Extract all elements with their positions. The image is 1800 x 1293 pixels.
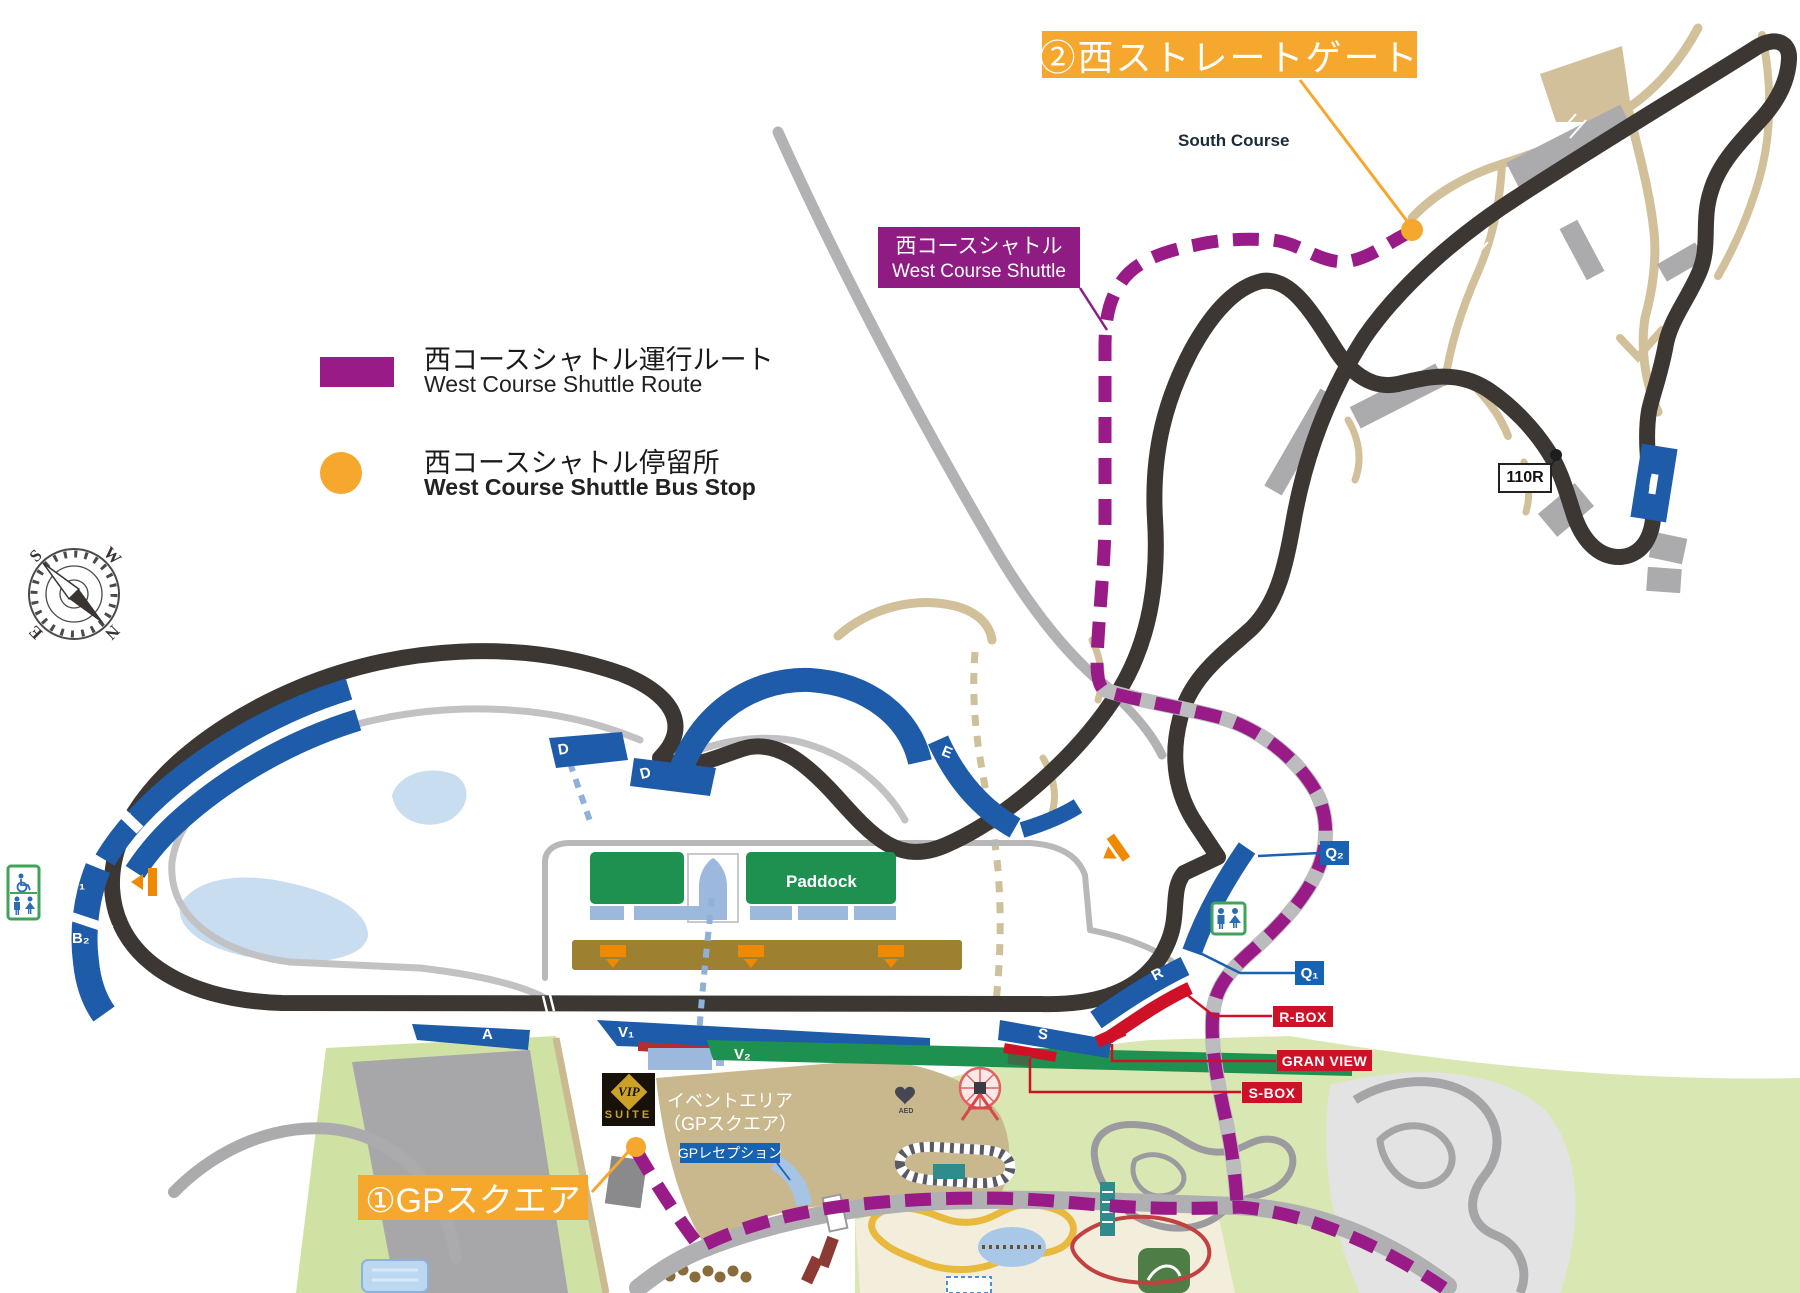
stand-label-q2-box: Q₂ bbox=[1320, 841, 1349, 865]
gran-view-label: GRAN VIEW bbox=[1277, 1050, 1372, 1071]
vip-suite-building: VIP SUITE bbox=[602, 1073, 655, 1126]
legend-stop-en: West Course Shuttle Bus Stop bbox=[424, 474, 756, 501]
vip-diamond-icon: VIP bbox=[610, 1073, 647, 1110]
shuttle-banner-jp: 西コースシャトル bbox=[878, 233, 1080, 260]
main-circuit-track bbox=[112, 41, 1789, 1004]
circuit-shuttle-map: W N E S ②西ストレートゲート South Course 西コースシャトル… bbox=[0, 0, 1800, 1293]
s-box-label: S-BOX bbox=[1242, 1082, 1302, 1103]
stand-label-q2: Q₂ bbox=[1325, 845, 1343, 862]
bus-stop-west-gate bbox=[1401, 219, 1423, 241]
facility-box-west bbox=[8, 866, 39, 919]
stand-label-a: A bbox=[482, 1026, 493, 1043]
facility-box-q bbox=[1212, 903, 1245, 934]
s-box-text: S-BOX bbox=[1249, 1085, 1296, 1101]
west-course-shuttle-banner: 西コースシャトル West Course Shuttle bbox=[878, 227, 1080, 288]
gp-square-label: ①GPスクエア bbox=[365, 1173, 581, 1222]
shuttle-banner-en: West Course Shuttle bbox=[878, 260, 1080, 285]
stand-label-q1-box: Q₁ bbox=[1295, 961, 1324, 985]
corner-110r-text: 110R bbox=[1506, 469, 1543, 487]
gran-view-text: GRAN VIEW bbox=[1282, 1053, 1367, 1069]
legend-route-swatch bbox=[320, 357, 394, 387]
corner-110r-label: 110R bbox=[1498, 463, 1552, 493]
stand-label-b1: B₁ bbox=[68, 876, 85, 893]
map-artwork: W N E S bbox=[0, 0, 1800, 1293]
gp-square-banner: ①GPスクエア bbox=[358, 1175, 588, 1220]
west-straight-gate-banner: ②西ストレートゲート bbox=[1042, 31, 1417, 78]
gp-reception-label: GPレセプション bbox=[680, 1143, 780, 1163]
grandstands bbox=[70, 444, 1678, 1076]
vip-text: VIP bbox=[618, 1083, 640, 1099]
compass-icon: W N E S bbox=[25, 543, 125, 644]
r-box-text: R-BOX bbox=[1279, 1009, 1327, 1025]
paddock-label: Paddock bbox=[786, 872, 857, 892]
stand-label-b2: B₂ bbox=[72, 930, 90, 947]
event-area-line1: イベントエリア bbox=[655, 1090, 805, 1113]
gp-reception-text: GPレセプション bbox=[678, 1143, 782, 1163]
west-straight-gate-label: ②西ストレートゲート bbox=[1040, 29, 1420, 81]
legend-stop-dot bbox=[320, 452, 362, 494]
south-course-label: South Course bbox=[1178, 131, 1289, 151]
stand-label-v2: V₂ bbox=[734, 1046, 751, 1063]
corner-110r-dot bbox=[1550, 449, 1562, 461]
r-box-label: R-BOX bbox=[1273, 1006, 1333, 1027]
paddock-complex bbox=[572, 852, 962, 970]
legend-route-en: West Course Shuttle Route bbox=[424, 371, 702, 398]
event-area-line2: （GPスクエア） bbox=[655, 1113, 805, 1136]
aed-label: AED bbox=[896, 1108, 916, 1115]
event-area-label: イベントエリア （GPスクエア） bbox=[655, 1090, 805, 1135]
stand-label-q1: Q₁ bbox=[1301, 965, 1319, 982]
bus-stop-gp-square bbox=[626, 1137, 646, 1157]
stand-label-v1: V₁ bbox=[618, 1024, 634, 1041]
